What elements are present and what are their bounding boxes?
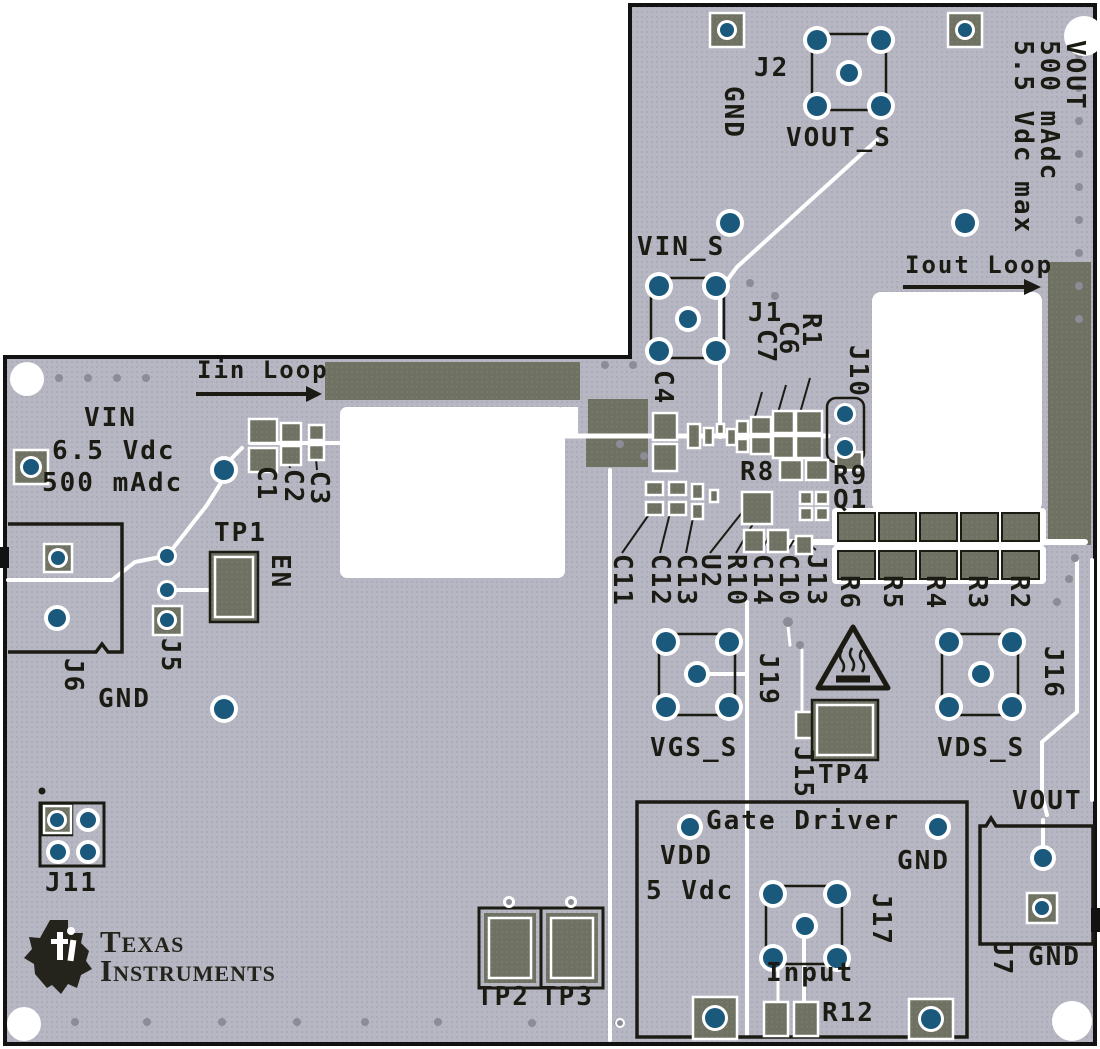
j17-label: J17 (867, 893, 894, 946)
spec-current-label: 500 mAdc (1035, 40, 1062, 181)
input-label: Input (766, 960, 854, 987)
r8-label: R8 (740, 459, 775, 486)
r12-label: R12 (822, 1000, 875, 1027)
spec-voltage-label: 5.5 Vdc max (1009, 40, 1036, 234)
c2-label: C2 (279, 469, 306, 504)
gnd-output-label: GND (1028, 944, 1081, 971)
r3-label: R3 (963, 575, 990, 610)
vin-s-label: VIN_S (637, 234, 725, 261)
tp4-label: TP4 (818, 762, 871, 789)
r4-label: R4 (921, 575, 948, 610)
gnd-top-label: GND (719, 86, 746, 139)
j7-label: J7 (988, 941, 1015, 976)
j5-label: J5 (156, 638, 183, 673)
vgs-s-label: VGS_S (650, 735, 738, 762)
iout-loop-label: Iout Loop (905, 253, 1053, 278)
q1-label: Q1 (833, 487, 868, 514)
vout-s-label: VOUT_S (786, 125, 892, 152)
pcb-screenshot: Iin Loop Iout Loop 5.5 Vdc max 500 mAdc … (0, 0, 1100, 1049)
silkscreen-labels: Iin Loop Iout Loop 5.5 Vdc max 500 mAdc … (0, 0, 1100, 1049)
c10-label: C10 (774, 554, 801, 607)
tp3-label: TP3 (541, 984, 594, 1011)
j13-label: J13 (802, 554, 829, 607)
iin-loop-label: Iin Loop (197, 358, 329, 383)
j2-label: J2 (754, 55, 789, 82)
vdd-label: VDD (660, 843, 713, 870)
vdd-voltage-label: 5 Vdc (646, 878, 734, 905)
r6-label: R6 (835, 575, 862, 610)
en-label: EN (266, 554, 293, 589)
c11-label: C11 (608, 554, 635, 607)
j6-label: J6 (59, 658, 86, 693)
j19-label: J19 (754, 653, 781, 706)
vin-label: VIN (84, 405, 137, 432)
tp2-label: TP2 (477, 984, 530, 1011)
j11-label: J11 (45, 870, 98, 897)
j10-label: J10 (844, 345, 871, 398)
c4-label: C4 (649, 370, 676, 405)
vout-label: VOUT (1012, 788, 1083, 815)
gnd-left-label: GND (98, 686, 151, 713)
tp1-label: TP1 (214, 520, 267, 547)
u2-label: U2 (696, 554, 723, 589)
j16-label: J16 (1039, 646, 1066, 699)
brand-name-instruments: Instruments (100, 955, 276, 986)
vin-current-label: 500 mAdc (42, 470, 183, 497)
gnd-gate-driver-label: GND (897, 848, 950, 875)
r2-label: R2 (1005, 575, 1032, 610)
vin-voltage-label: 6.5 Vdc (52, 438, 176, 465)
c14-label: C14 (748, 554, 775, 607)
c12-label: C12 (646, 554, 673, 607)
c3-label: C3 (305, 471, 332, 506)
j15-label: J15 (789, 746, 816, 799)
r5-label: R5 (878, 575, 905, 610)
spec-vout-label: VOUT (1061, 40, 1088, 111)
vds-s-label: VDS_S (937, 735, 1025, 762)
gate-driver-title: Gate Driver (706, 808, 900, 835)
r10-label: R10 (722, 554, 749, 607)
r1-label: R1 (797, 313, 824, 348)
c1-label: C1 (252, 466, 279, 501)
